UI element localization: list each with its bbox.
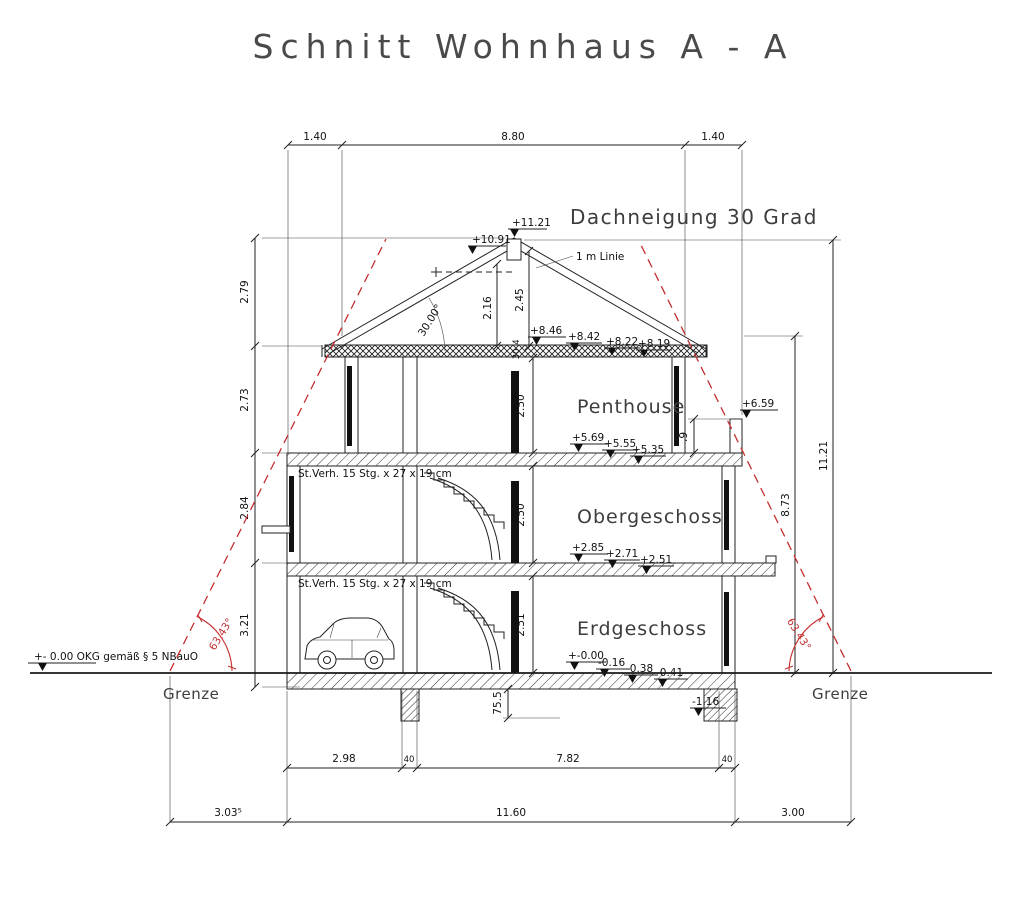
- bottom-dimension-chains: 2.98 40 7.82 40 3.03⁵ 11.60 3.00: [166, 676, 855, 826]
- level-og-3: +2.51: [640, 554, 672, 566]
- level-ridge-lower: +10.91: [472, 234, 511, 246]
- dim-slab-4: 4: [512, 339, 522, 344]
- angle-right-label: 63.43°: [784, 616, 813, 652]
- dim-b1-3: 7.82: [556, 753, 579, 765]
- dim-left-1: 2.79: [239, 280, 251, 303]
- og-window: [289, 476, 294, 552]
- level-pf-3: +5.35: [632, 444, 664, 456]
- ground-note: +- 0.00 OKG gemäß § 5 NBauO: [34, 651, 198, 663]
- og-right-window: [724, 480, 729, 550]
- dim-left-4: 3.21: [239, 613, 251, 636]
- room-label-penthouse: Penthouse: [577, 396, 685, 418]
- one-m-line-label: 1 m Linie: [576, 251, 624, 263]
- grenze-left-label: Grenze: [163, 685, 219, 703]
- level-og-1: +2.85: [572, 542, 604, 554]
- level-terrace: +6.59: [742, 398, 774, 410]
- dim-right-total: 11.21: [818, 441, 830, 471]
- dim-b2-1: 3.03⁵: [214, 807, 242, 819]
- dim-b2-3: 3.00: [781, 807, 804, 819]
- level-foundation: -1.16: [692, 696, 719, 708]
- stair-note-lower: St.Verh. 15 Stg. x 27 x 19 cm: [298, 578, 452, 590]
- dim-roof-2-16: 2.16: [482, 296, 494, 320]
- stair-note-upper: St.Verh. 15 Stg. x 27 x 19 cm: [298, 468, 452, 480]
- dim-b1-2: 40: [404, 755, 415, 765]
- level-og-2: +2.71: [606, 548, 638, 560]
- roof-pitch-label: Dachneigung 30 Grad: [570, 205, 818, 229]
- dim-foundation-depth: 75.5: [492, 691, 504, 714]
- level-pf-1: +5.69: [572, 432, 604, 444]
- drawing-sheet: Schnitt Wohnhaus A - A 1.40 8.80 1.40 30…: [0, 0, 1023, 912]
- dim-height-og: 2.50: [515, 503, 527, 526]
- grenze-right-label: Grenze: [812, 685, 868, 703]
- level-eave-4: +8.19: [638, 338, 670, 350]
- dim-parapet: .9: [678, 432, 690, 442]
- foundation-left: [401, 689, 419, 721]
- dim-slab-30: 30: [512, 349, 522, 360]
- penthouse-window: [347, 366, 352, 446]
- building-section-drawing: Schnitt Wohnhaus A - A 1.40 8.80 1.40 30…: [0, 0, 1023, 912]
- roof: 30.00° Dachneigung 30 Grad 1 m Linie 2.1…: [322, 205, 818, 359]
- dim-top-middle: 8.80: [501, 131, 524, 143]
- terrace-parapet: [730, 419, 742, 453]
- dim-height-eg: 2.51: [515, 613, 527, 636]
- dim-right-eave: 8.73: [780, 493, 792, 516]
- dim-b1-4: 40: [722, 755, 733, 765]
- dim-top-left: 1.40: [303, 131, 326, 143]
- dim-top-right: 1.40: [701, 131, 724, 143]
- site: +- 0.00 OKG gemäß § 5 NBauO Grenze Grenz…: [28, 239, 992, 703]
- car: [305, 618, 394, 669]
- room-label-obergeschoss: Obergeschoss: [577, 506, 723, 528]
- level-eg-2: -0.16: [598, 657, 625, 669]
- dim-roof-2-45: 2.45: [514, 288, 526, 311]
- og-window-sill: [262, 526, 290, 533]
- dim-b2-2: 11.60: [496, 807, 526, 819]
- room-label-erdgeschoss: Erdgeschoss: [577, 618, 707, 640]
- rooms: Penthouse Obergeschoss Erdgeschoss 2.50 …: [515, 354, 723, 677]
- page-title: Schnitt Wohnhaus A - A: [253, 27, 794, 66]
- dim-b1-1: 2.98: [332, 753, 355, 765]
- dim-left-3: 2.84: [239, 496, 251, 520]
- dim-left-2: 2.73: [239, 388, 251, 411]
- roof-angle-label: 30.00°: [416, 302, 445, 338]
- eg-left-wall: [287, 576, 300, 673]
- level-ridge: +11.21: [512, 217, 551, 229]
- level-eave-3: +8.22: [606, 336, 638, 348]
- angle-left-label: 63.43°: [207, 616, 236, 652]
- level-eave-2: +8.42: [568, 331, 600, 343]
- eg-right-door: [724, 592, 729, 666]
- dim-height-penthouse: 2.50: [515, 394, 527, 417]
- level-eave-1: +8.46: [530, 325, 562, 337]
